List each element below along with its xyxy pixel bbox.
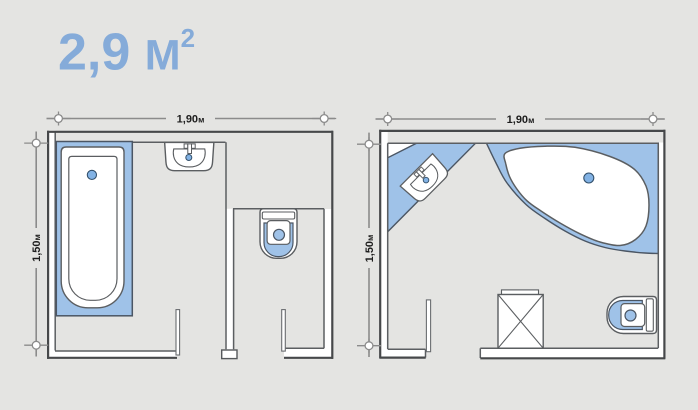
svg-text:1,90м: 1,90м	[507, 114, 535, 126]
svg-text:2,9 М2: 2,9 М2	[58, 23, 195, 82]
svg-text:1,50м: 1,50м	[31, 234, 43, 262]
svg-text:1,50м: 1,50м	[364, 235, 376, 263]
svg-text:1,90м: 1,90м	[177, 113, 205, 125]
